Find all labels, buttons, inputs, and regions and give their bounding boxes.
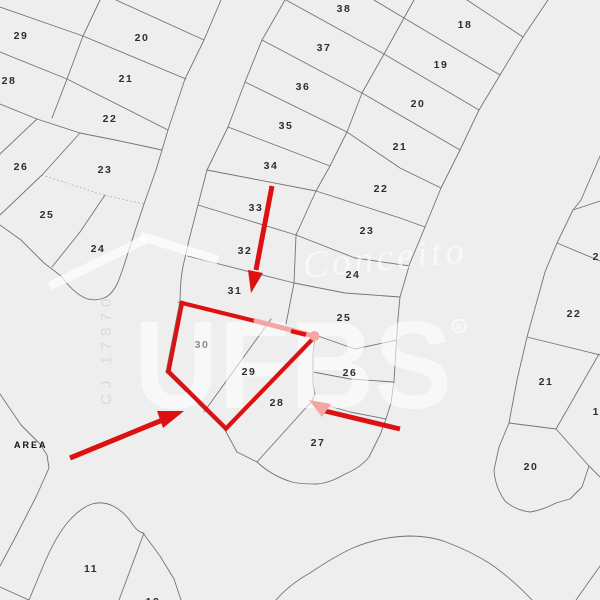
svg-text:22: 22 [103,113,118,125]
svg-text:37: 37 [317,42,332,54]
svg-text:33: 33 [249,202,264,214]
svg-text:CJ 17870: CJ 17870 [98,293,115,405]
svg-text:26: 26 [14,161,29,173]
svg-text:UFBS: UFBS [134,297,452,435]
svg-text:30: 30 [195,339,210,351]
svg-text:36: 36 [296,81,311,93]
svg-text:34: 34 [264,160,279,172]
svg-text:20: 20 [524,461,539,473]
svg-text:AREA: AREA [14,440,48,450]
svg-text:23: 23 [360,225,375,237]
svg-text:28: 28 [270,397,285,409]
svg-text:31: 31 [228,285,243,297]
svg-text:19: 19 [593,406,600,418]
svg-text:R: R [456,322,463,332]
svg-text:24: 24 [91,243,106,255]
svg-text:20: 20 [135,32,150,44]
svg-text:24: 24 [346,269,361,281]
svg-text:23: 23 [98,164,113,176]
svg-text:21: 21 [539,376,554,388]
svg-text:12: 12 [146,596,161,600]
svg-text:29: 29 [14,30,29,42]
svg-text:22: 22 [567,308,582,320]
svg-text:28: 28 [2,75,17,87]
svg-text:11: 11 [84,563,98,575]
svg-text:26: 26 [343,367,358,379]
svg-text:29: 29 [242,366,257,378]
svg-text:19: 19 [434,59,449,71]
svg-text:32: 32 [238,245,253,257]
svg-text:20: 20 [411,98,426,110]
svg-text:22: 22 [374,183,389,195]
svg-text:25: 25 [40,209,55,221]
svg-text:21: 21 [393,141,408,153]
svg-text:27: 27 [311,437,326,449]
svg-text:38: 38 [337,3,352,15]
svg-text:21: 21 [119,73,134,85]
svg-text:35: 35 [279,120,294,132]
svg-text:18: 18 [458,19,473,31]
svg-text:25: 25 [337,312,352,324]
svg-text:23: 23 [593,251,600,263]
